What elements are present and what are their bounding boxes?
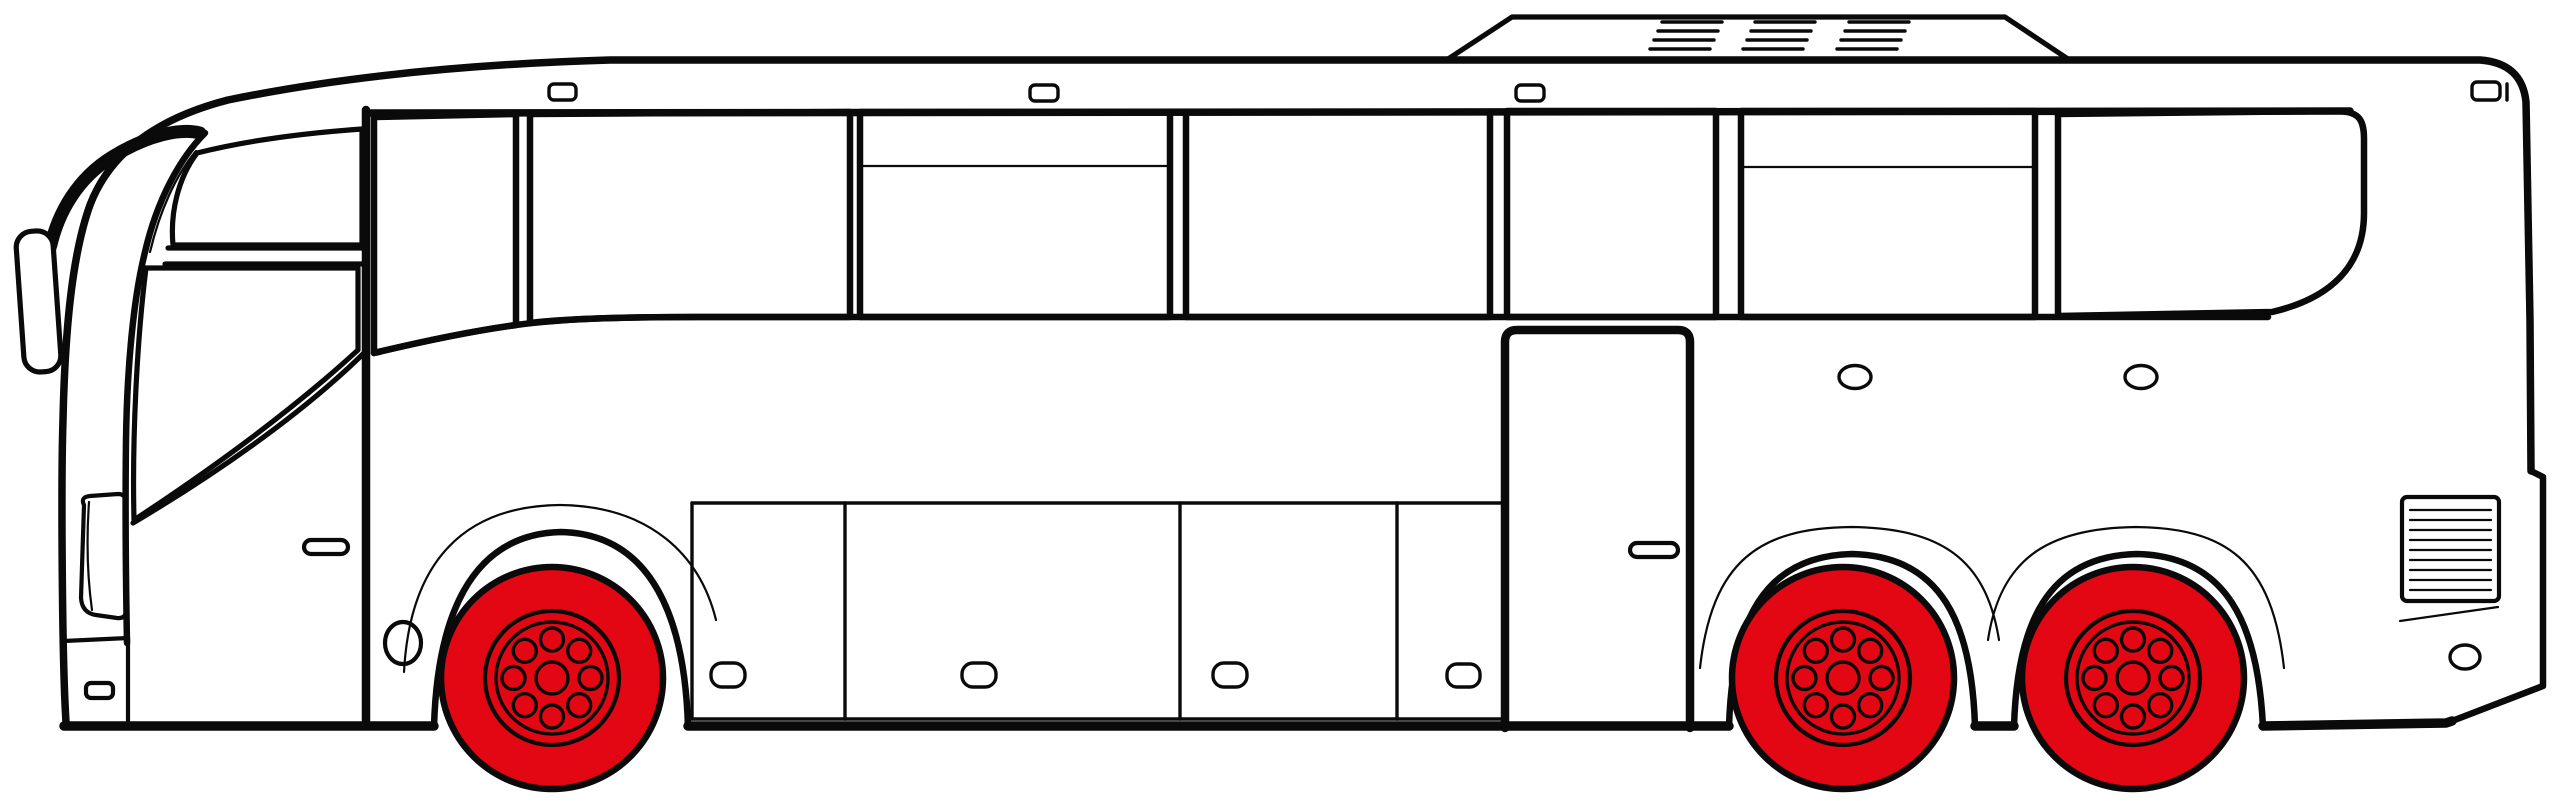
mirror-arm-inner	[54, 134, 197, 246]
front-door	[133, 110, 366, 724]
window-5	[1186, 112, 1490, 317]
luggage-door-handle	[711, 663, 745, 687]
luggage-door-handle	[962, 663, 996, 687]
roof-vent-group-1	[1650, 22, 1722, 49]
side-marker	[2125, 366, 2157, 389]
front-door-handle	[304, 540, 348, 554]
bumper-top-line	[64, 638, 128, 641]
mid-door	[1505, 330, 1690, 728]
rear-wheel-2	[2022, 567, 2244, 789]
rear-wheel-1	[1732, 567, 1954, 789]
front-door-window-divider	[165, 248, 362, 264]
clearance-lights	[549, 82, 2507, 101]
roof-pod	[1448, 17, 2068, 59]
clearance-light	[549, 84, 576, 100]
mirror-housing	[15, 230, 62, 373]
wheel-arches	[404, 505, 2284, 727]
rear-crease-line	[2400, 607, 2498, 621]
front-wheel	[441, 567, 663, 789]
front-door-lower-window	[134, 268, 358, 520]
side-windows	[370, 111, 2364, 353]
window-6	[1507, 111, 1716, 317]
window-7	[1741, 111, 2035, 317]
bus-drawing-canvas: Side-view line drawing of a tour coach b…	[0, 0, 2560, 807]
rear-engine-grille	[2400, 497, 2499, 621]
rear-marker	[2450, 645, 2480, 669]
grille-slats	[2410, 510, 2491, 590]
window-3	[530, 112, 850, 323]
clearance-light	[1516, 85, 1544, 101]
window-8-rear	[2058, 111, 2364, 316]
headlight-inner-line	[88, 502, 92, 610]
mid-door-outline	[1505, 330, 1690, 728]
fuel-filler-flap	[385, 622, 421, 664]
roof-vent-group-2	[1743, 22, 1815, 49]
luggage-bay	[692, 503, 1503, 719]
roof-vent-group-3	[1837, 22, 1909, 49]
luggage-door-handle	[1213, 663, 1247, 687]
luggage-door-handle	[1447, 664, 1480, 687]
side-marker	[1839, 366, 1871, 389]
mid-door-handle	[1630, 543, 1678, 557]
window-4	[860, 112, 1170, 317]
front-door-upper-window	[172, 129, 362, 245]
fog-lamp	[86, 683, 113, 698]
coach-bus-side-view: Side-view line drawing of a tour coach b…	[0, 0, 2560, 807]
side-mirror	[15, 131, 200, 373]
window-2	[374, 114, 516, 353]
clearance-light	[2472, 82, 2500, 100]
belt-line	[374, 317, 2268, 353]
front-end-details	[64, 494, 128, 726]
clearance-light	[1030, 85, 1058, 101]
